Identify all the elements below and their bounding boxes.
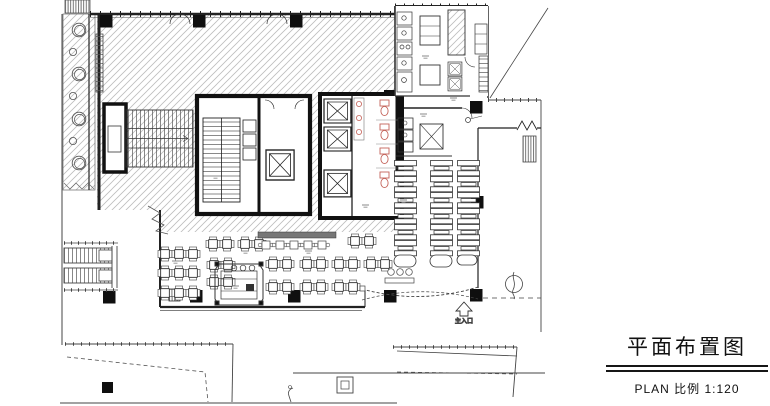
dining-tables <box>158 232 392 300</box>
booth-end-cap <box>430 255 452 267</box>
bench-icon <box>523 136 536 162</box>
entrance-arrow-icon <box>456 302 472 316</box>
dumbwaiter-icon <box>448 62 462 76</box>
ps-symbol-icon <box>466 118 471 123</box>
grand-stair <box>104 104 193 172</box>
elevator-shaft-icon <box>324 127 351 151</box>
escalator <box>64 243 118 290</box>
scale-label: PLAN 比例 1:120 <box>606 380 768 397</box>
servery <box>396 114 482 156</box>
shelving-icon <box>448 10 465 55</box>
core-elevators-wc <box>320 85 405 218</box>
banquette-bench <box>258 232 336 238</box>
wall-break-zigzag-icon <box>517 121 537 130</box>
booth-end-cap <box>457 255 477 265</box>
bar-seating <box>385 269 414 283</box>
kitchen <box>395 6 488 100</box>
booth-rows <box>394 161 480 268</box>
dumbwaiter-icon <box>448 77 462 91</box>
title-divider <box>606 365 768 372</box>
entrance-label: 主入口 <box>455 317 473 325</box>
page-title: 平面布置图 <box>606 334 768 361</box>
column-icon <box>102 382 113 393</box>
patio-area <box>483 136 541 299</box>
elevator-shaft-icon <box>324 99 351 123</box>
main-entrance: 主入口 <box>360 286 478 325</box>
core-stair-elevator <box>197 96 310 214</box>
booth-end-cap <box>394 255 416 267</box>
floor-plan-sheet: 主入口 平面布置图 PLAN 比例 1:120 <box>0 0 770 406</box>
site-plan-lower <box>60 344 545 403</box>
elevator-shaft-icon <box>324 170 351 197</box>
escalator-above-icon <box>65 0 90 13</box>
title-block: 平面布置图 PLAN 比例 1:120 <box>606 334 768 397</box>
elevator-shaft-icon <box>266 150 294 180</box>
